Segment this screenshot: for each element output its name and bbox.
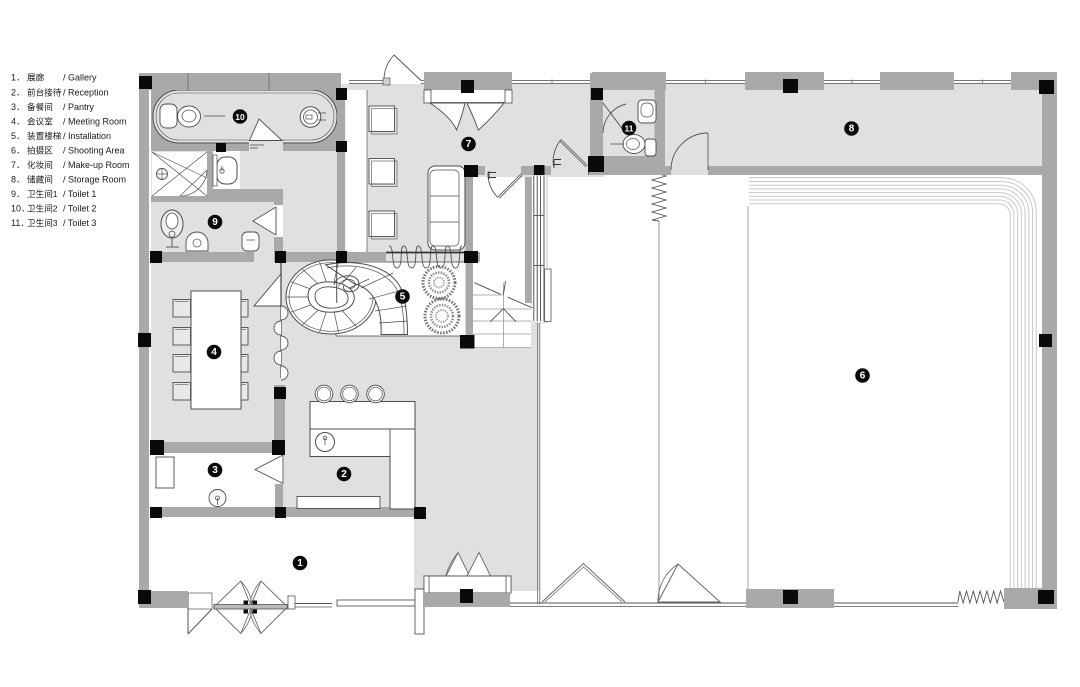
svg-text:前台接待: 前台接待 — [27, 86, 62, 97]
svg-text:装置楼梯: 装置楼梯 — [27, 130, 62, 141]
svg-text:5: 5 — [400, 292, 406, 303]
svg-text:/ Meeting Room: / Meeting Room — [63, 116, 127, 126]
svg-text:卫生间3: 卫生间3 — [27, 217, 58, 228]
svg-text:会议室: 会议室 — [27, 115, 53, 126]
svg-text:卫生间2: 卫生间2 — [27, 203, 58, 214]
svg-text:3: 3 — [212, 465, 218, 476]
svg-text:/ Make-up Room: / Make-up Room — [63, 160, 130, 170]
svg-text:7: 7 — [466, 139, 472, 150]
svg-text:/ Toilet 3: / Toilet 3 — [63, 218, 96, 228]
svg-text:/ Toilet 1: / Toilet 1 — [63, 189, 96, 199]
svg-text:/ Toilet 2: / Toilet 2 — [63, 204, 96, 214]
svg-text:卫生间1: 卫生间1 — [27, 188, 58, 199]
svg-text:2: 2 — [341, 469, 347, 480]
svg-text:9: 9 — [212, 217, 218, 228]
svg-text:备餐间: 备餐间 — [27, 101, 53, 112]
svg-text:化妆间: 化妆间 — [27, 159, 53, 170]
svg-text:7．: 7． — [11, 160, 25, 170]
svg-text:储藏间: 储藏间 — [27, 174, 53, 185]
svg-text:/ Gallery: / Gallery — [63, 73, 97, 83]
svg-text:/ Installation: / Installation — [63, 131, 111, 141]
svg-text:11: 11 — [625, 124, 634, 134]
svg-text:/ Pantry: / Pantry — [63, 102, 95, 112]
svg-text:8: 8 — [849, 124, 855, 135]
svg-text:6: 6 — [860, 371, 866, 382]
svg-text:10: 10 — [235, 112, 245, 122]
svg-text:/ Shooting Area: / Shooting Area — [63, 145, 125, 155]
svg-text:4．: 4． — [11, 116, 25, 126]
svg-text:3．: 3． — [11, 102, 25, 112]
svg-text:2．: 2． — [11, 87, 25, 97]
svg-text:展廊: 展廊 — [27, 72, 45, 83]
svg-text:/ Reception: / Reception — [63, 87, 109, 97]
svg-text:1: 1 — [297, 558, 303, 569]
svg-text:5．: 5． — [11, 131, 25, 141]
svg-text:9．: 9． — [11, 189, 25, 199]
svg-text:拍摄区: 拍摄区 — [27, 144, 53, 155]
svg-text:4: 4 — [211, 347, 217, 358]
svg-text:8．: 8． — [11, 175, 25, 185]
svg-text:6．: 6． — [11, 145, 25, 155]
svg-text:/ Storage Room: / Storage Room — [63, 175, 126, 185]
svg-text:1．: 1． — [11, 73, 25, 83]
